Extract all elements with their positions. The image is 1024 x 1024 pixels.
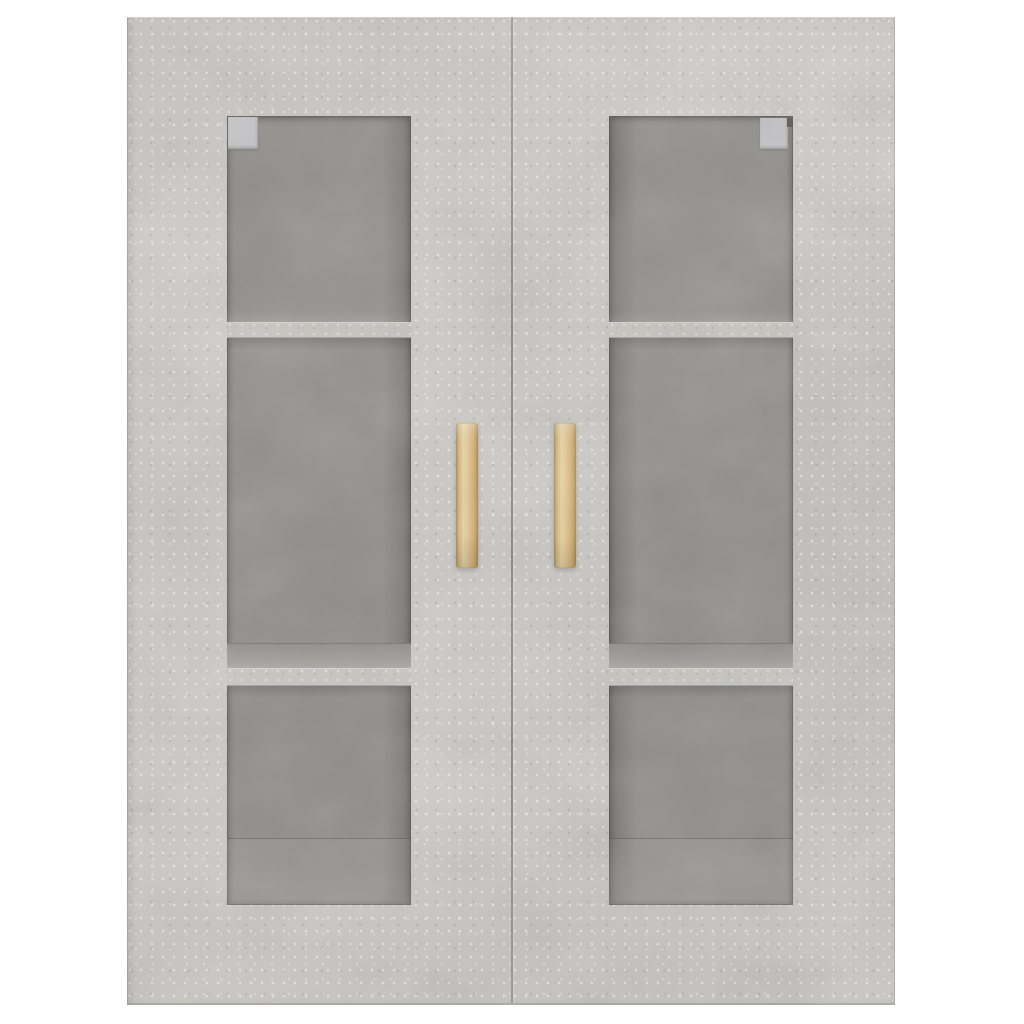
shelf-top-surface-left (227, 643, 411, 668)
glass-inner-shadow (383, 116, 411, 905)
glass-panel-right (609, 116, 793, 905)
shelf-highlight (227, 310, 411, 322)
shelf-top-surface-right (609, 643, 793, 668)
shelf-front-lower-right (609, 668, 793, 686)
shelf-shadow (609, 338, 793, 350)
shelf-front-upper-right (609, 322, 793, 338)
back-panel-lower (609, 839, 793, 905)
product-photo (0, 0, 1024, 1024)
shelf-shadow (609, 686, 793, 698)
shelf-front-lower-left (227, 668, 411, 686)
wooden-handle-left (456, 423, 478, 568)
hinge-clip-icon (760, 118, 788, 149)
wall-cabinet (127, 17, 895, 1005)
hinge-clip-icon (228, 117, 258, 149)
back-panel-lower (227, 839, 411, 905)
shelf-shadow (227, 338, 411, 350)
glass-inner-shadow (609, 116, 637, 905)
wooden-handle-right (554, 423, 576, 568)
hinge-notch-icon (787, 118, 793, 127)
door-gap-line (511, 17, 513, 1003)
shelf-front-upper-left (227, 322, 411, 338)
glass-panel-left (227, 116, 411, 905)
shelf-highlight (609, 310, 793, 322)
shelf-shadow (227, 686, 411, 698)
